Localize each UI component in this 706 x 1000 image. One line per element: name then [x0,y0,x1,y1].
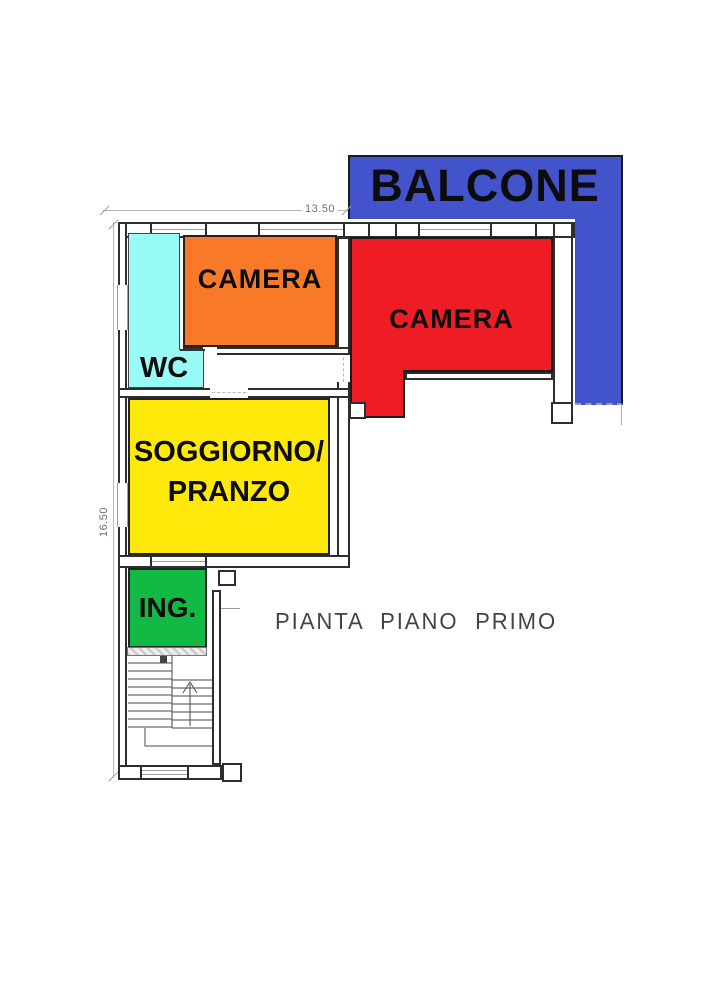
wall-tick [490,222,492,238]
wall-tick [535,222,537,238]
wall-below-red-camera [405,372,553,380]
room-label-camera-orange: CAMERA [183,263,337,295]
wall-tick [205,555,207,568]
room-wc [128,233,180,350]
window-line [152,561,205,562]
room-balcone-side [575,219,623,405]
window-line [260,229,343,230]
wall-right-upper [553,222,573,404]
wall-tick [368,222,370,238]
wall-tick [187,765,189,780]
floor-plan: BALCONE 13.50 16.50 [0,0,706,1000]
window-left [117,285,128,330]
door-opening [203,346,217,357]
window-line [142,774,187,775]
room-label-ingresso: ING. [128,591,207,625]
window-line [142,770,187,771]
room-label-camera-red: CAMERA [350,303,553,335]
dimension-height-label: 16.50 [98,504,110,540]
window-line [152,229,205,230]
wall-pier [551,402,573,424]
door-dashes [343,352,344,382]
wall-pier [553,222,573,238]
window-line [420,229,490,230]
wall-bottom [118,765,222,780]
wall-tick [395,222,397,238]
wall-tick [418,222,420,238]
staircase-icon [126,648,221,765]
room-label-soggiorno-line2: PRANZO [128,472,330,512]
wall-tick [343,222,345,238]
dimension-width-label: 13.50 [302,203,338,215]
door-dashes [212,392,246,393]
wall-tick [140,765,142,780]
wall-pier [218,570,236,586]
room-label-balcone: BALCONE [355,157,615,215]
balcone-edge-line [621,405,622,425]
room-label-soggiorno-line1: SOGGIORNO/ [128,432,330,472]
door-line [221,608,240,609]
wall-pier [349,402,366,419]
window-left [117,483,128,527]
plan-title: PIANTA PIANO PRIMO [275,608,557,635]
wall-pier [222,763,242,782]
dimension-line-left [113,222,114,778]
room-label-wc: WC [125,351,203,385]
